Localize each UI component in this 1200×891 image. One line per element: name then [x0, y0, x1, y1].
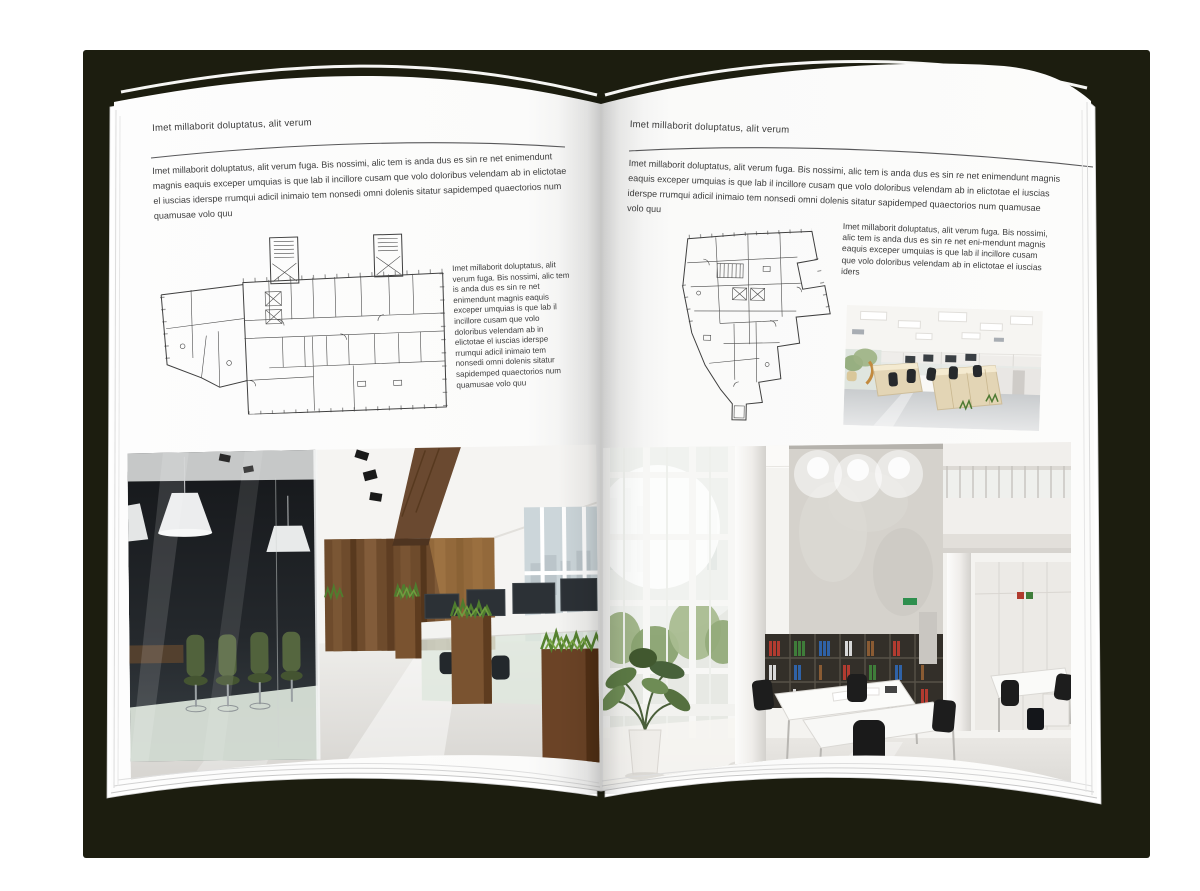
magazine-mockup: Imet millaborit doluptatus, alit verum I…	[0, 0, 1200, 891]
left-office-photo	[127, 445, 599, 780]
right-large-office-photo	[603, 442, 1071, 790]
left-page-side-text: Imet millaborit doluptatus, alit verum f…	[452, 260, 575, 391]
exit-sign-icon	[903, 598, 917, 605]
right-small-office-photo	[843, 305, 1043, 431]
stair-tower-icon	[270, 237, 299, 284]
waste-bin-icon	[1027, 708, 1044, 730]
foreground-chair	[847, 720, 892, 790]
safety-sign-icon	[1026, 592, 1033, 599]
safety-sign-icon	[1017, 592, 1024, 599]
left-floor-plan	[150, 229, 451, 417]
right-floor-plan	[648, 222, 842, 424]
office-ceiling	[845, 305, 1042, 357]
mezzanine	[943, 442, 1071, 553]
right-page-side-text: Imet millaborit doluptatus, alit verum f…	[841, 221, 1049, 285]
concrete-wall	[789, 442, 943, 634]
stair-tower-icon	[374, 234, 403, 277]
glass-meeting-room	[127, 447, 320, 761]
